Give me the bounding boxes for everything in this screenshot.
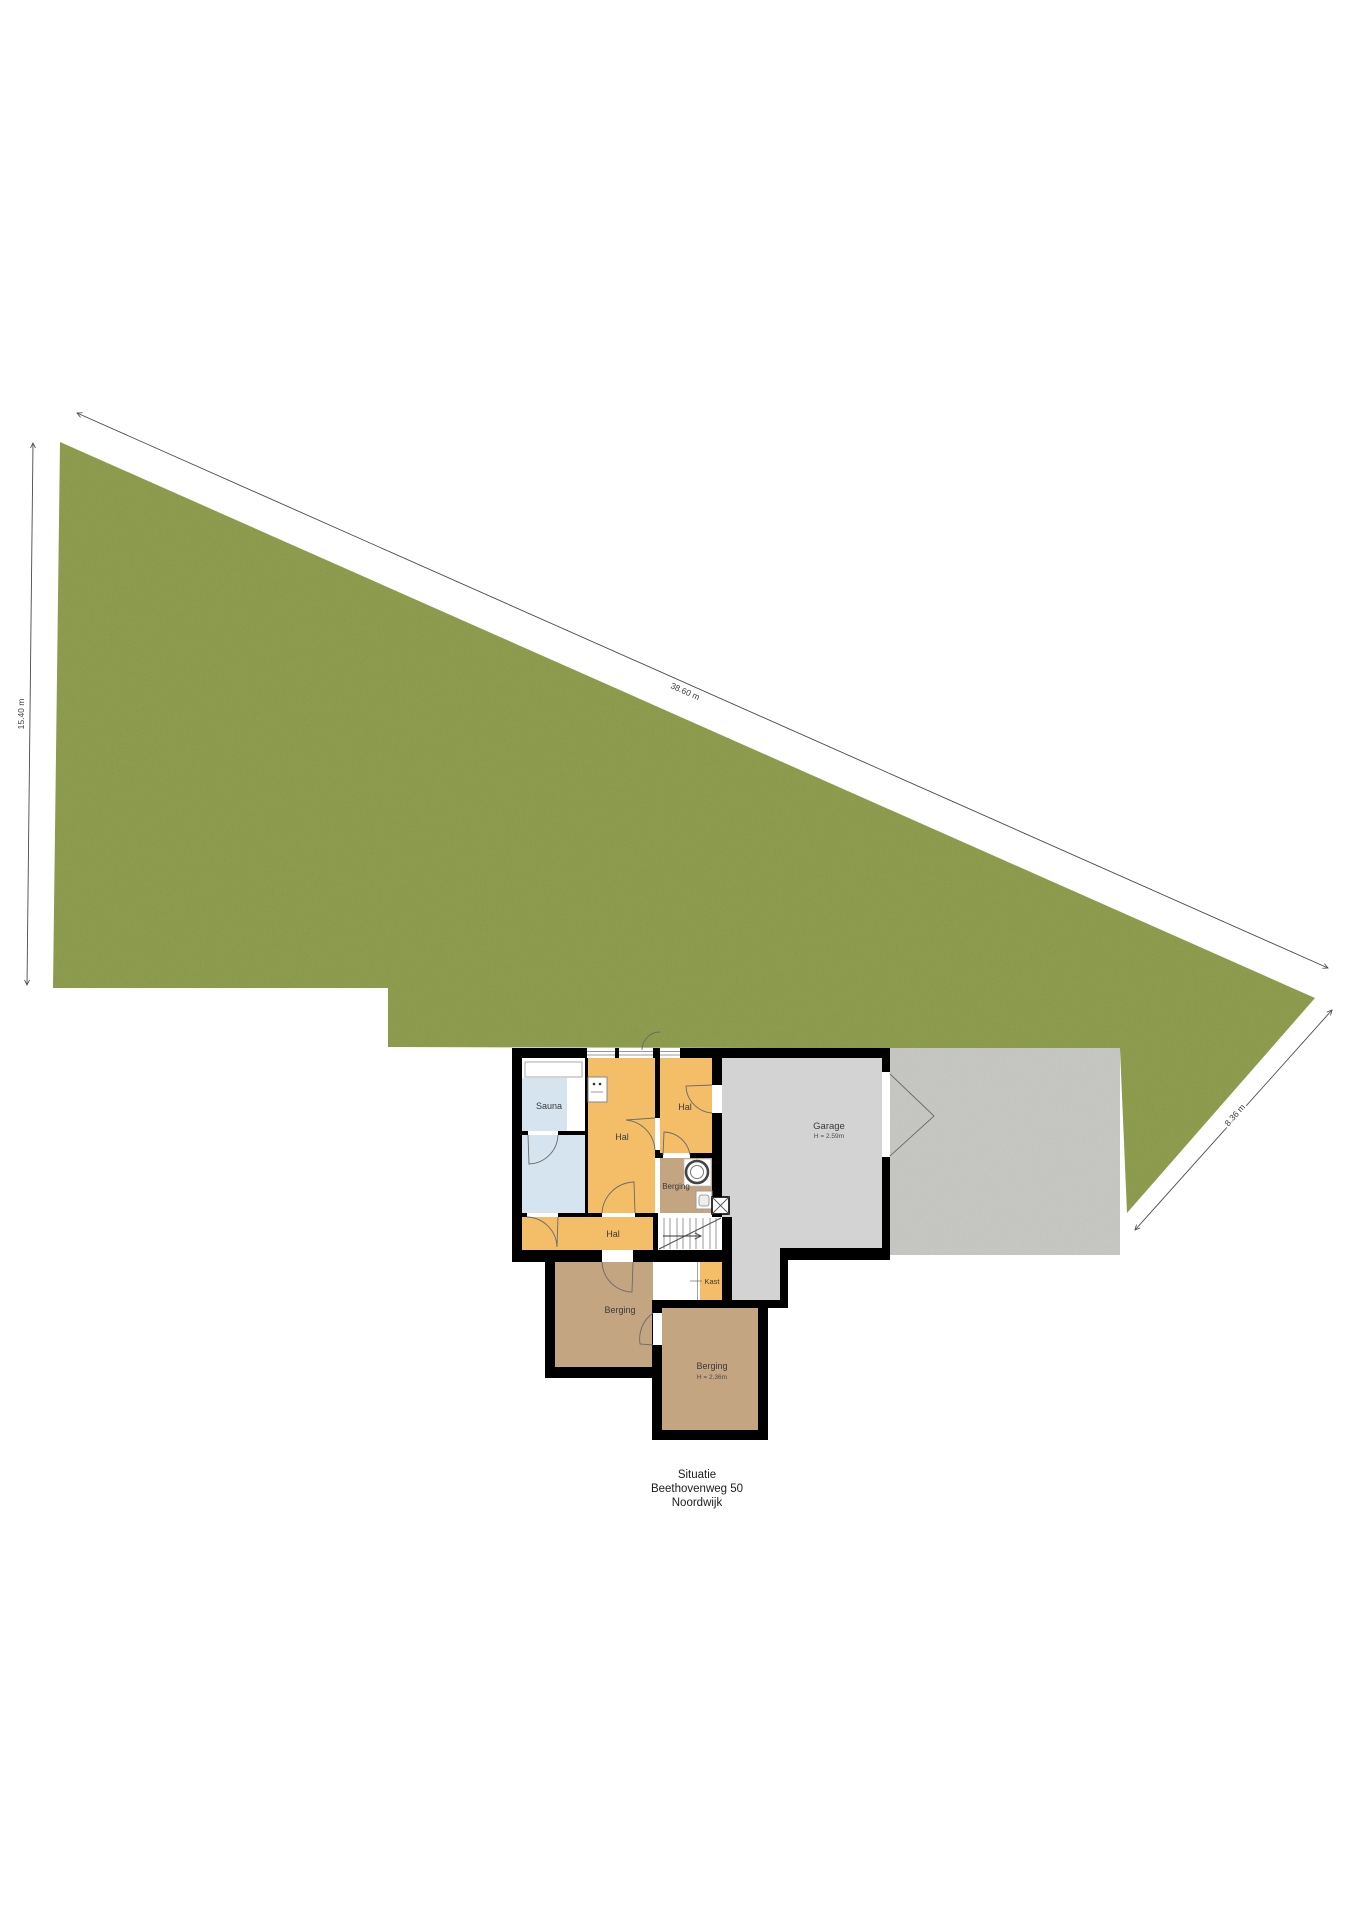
dimension-label-left: 15.40 m	[16, 699, 26, 730]
floorplan-svg: 15.40 m 38.60 m 8.36 m	[0, 0, 1358, 1920]
room-hal-bottom	[522, 1217, 653, 1250]
label-berging-right-height: H = 2.36m	[697, 1374, 727, 1381]
title-block: Situatie Beethovenweg 50 Noordwijk	[651, 1469, 743, 1509]
sauna-bench	[525, 1062, 582, 1077]
label-berging-right: Berging	[696, 1361, 727, 1371]
label-garage: Garage	[813, 1121, 845, 1132]
title-line-situatie: Situatie	[678, 1469, 716, 1481]
label-berging-left: Berging	[604, 1305, 635, 1315]
window-top-1	[587, 1048, 615, 1058]
door-bath-bottom	[527, 1213, 558, 1217]
label-berging-small: Berging	[662, 1182, 690, 1191]
dimension-label-right: 8.36 m	[1222, 1102, 1247, 1128]
door-berging-berging	[653, 1313, 662, 1345]
door-hal-halTop	[655, 1118, 660, 1150]
title-line-address: Beethovenweg 50	[651, 1483, 743, 1495]
washing-machine-icon	[686, 1161, 708, 1183]
door-bath-top	[528, 1131, 558, 1135]
label-hal-bottom: Hal	[606, 1229, 620, 1239]
dimension-label-top: 38.60 m	[669, 680, 701, 702]
meter-cupboard	[588, 1077, 607, 1102]
shaft-x-icon	[712, 1197, 729, 1214]
label-hal-main: Hal	[615, 1132, 629, 1142]
door-hal-halBottom	[602, 1213, 635, 1217]
building: Sauna Hal Hal Berging Hal Garage H = 2.5…	[512, 1032, 934, 1440]
label-kast: Kast	[704, 1277, 720, 1286]
front-door-opening	[660, 1048, 680, 1058]
room-bath	[522, 1135, 585, 1213]
window-top-2	[619, 1048, 653, 1058]
door-halTop-garage	[712, 1085, 722, 1113]
room-garage-passage	[732, 1248, 780, 1300]
situation-floorplan-page: 15.40 m 38.60 m 8.36 m	[0, 0, 1358, 1920]
door-berging-small	[663, 1153, 690, 1158]
room-garage	[722, 1058, 882, 1248]
dimension-line-left	[27, 443, 33, 985]
label-garage-height: H = 2.59m	[814, 1133, 844, 1140]
title-line-city: Noordwijk	[672, 1497, 723, 1509]
driveway-concrete-area	[890, 1048, 1120, 1255]
label-hal-top: Hal	[678, 1102, 692, 1112]
label-sauna: Sauna	[536, 1101, 562, 1111]
garage-door-opening	[882, 1072, 890, 1157]
door-halBottom-berging	[602, 1250, 633, 1262]
